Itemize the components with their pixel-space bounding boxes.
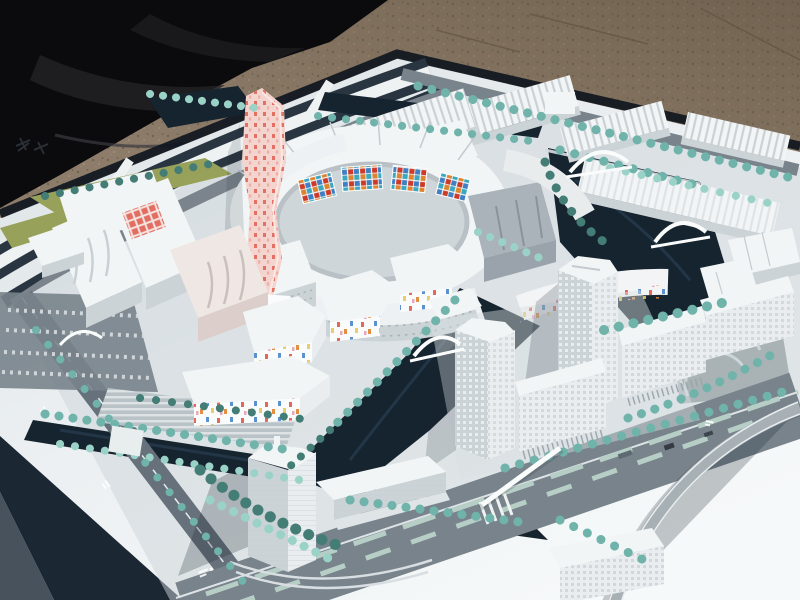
road-bridge xyxy=(108,426,144,457)
model-scene xyxy=(0,0,800,600)
tower-south xyxy=(455,318,515,460)
parking-lot xyxy=(0,292,158,392)
scale-model-photo xyxy=(0,0,800,600)
